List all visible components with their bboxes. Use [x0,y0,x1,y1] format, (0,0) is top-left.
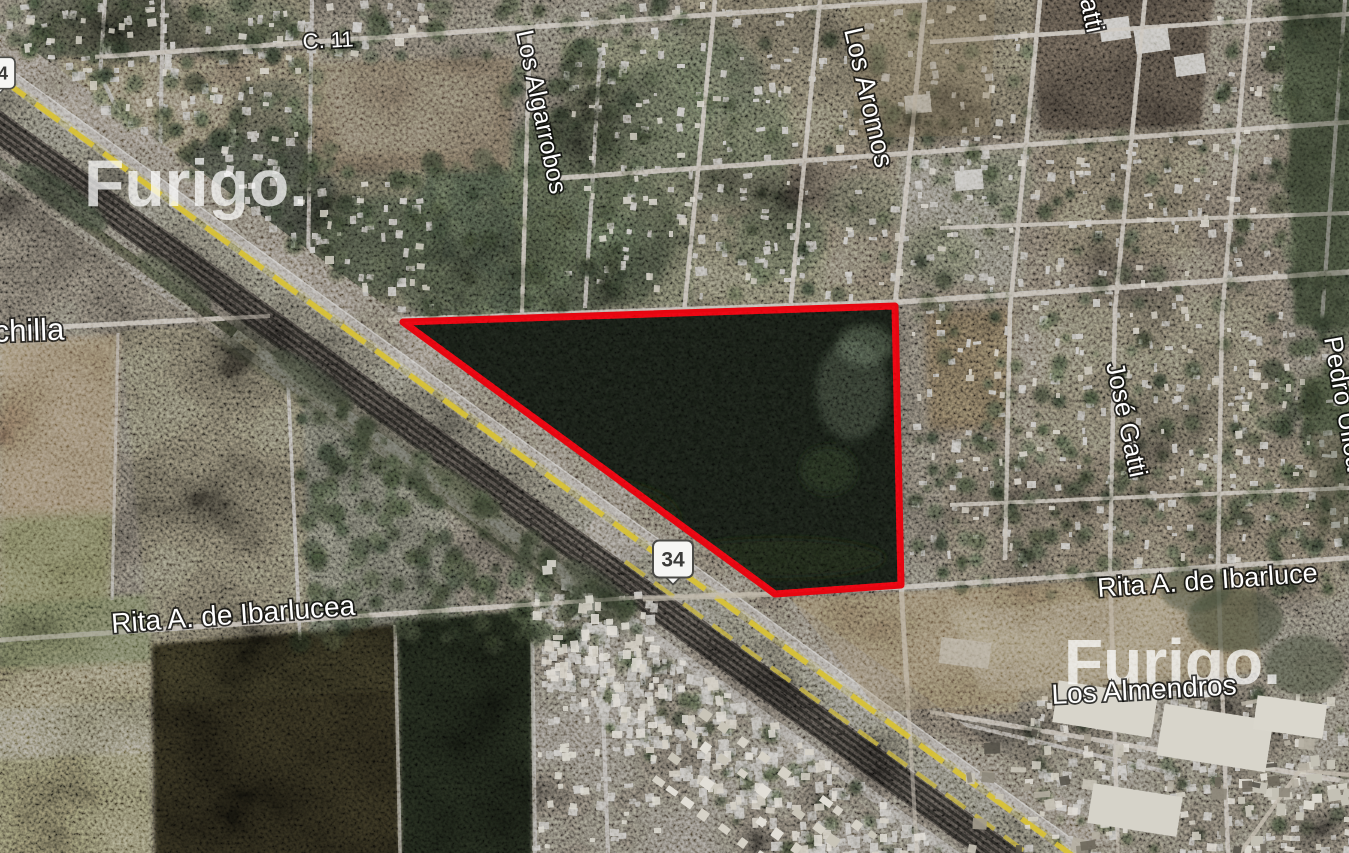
svg-text:C. 11: C. 11 [302,26,354,54]
svg-text:Furigo.: Furigo. [84,146,308,220]
svg-text:chilla: chilla [0,312,66,349]
svg-text:34: 34 [661,549,685,572]
svg-text:34: 34 [0,63,8,83]
